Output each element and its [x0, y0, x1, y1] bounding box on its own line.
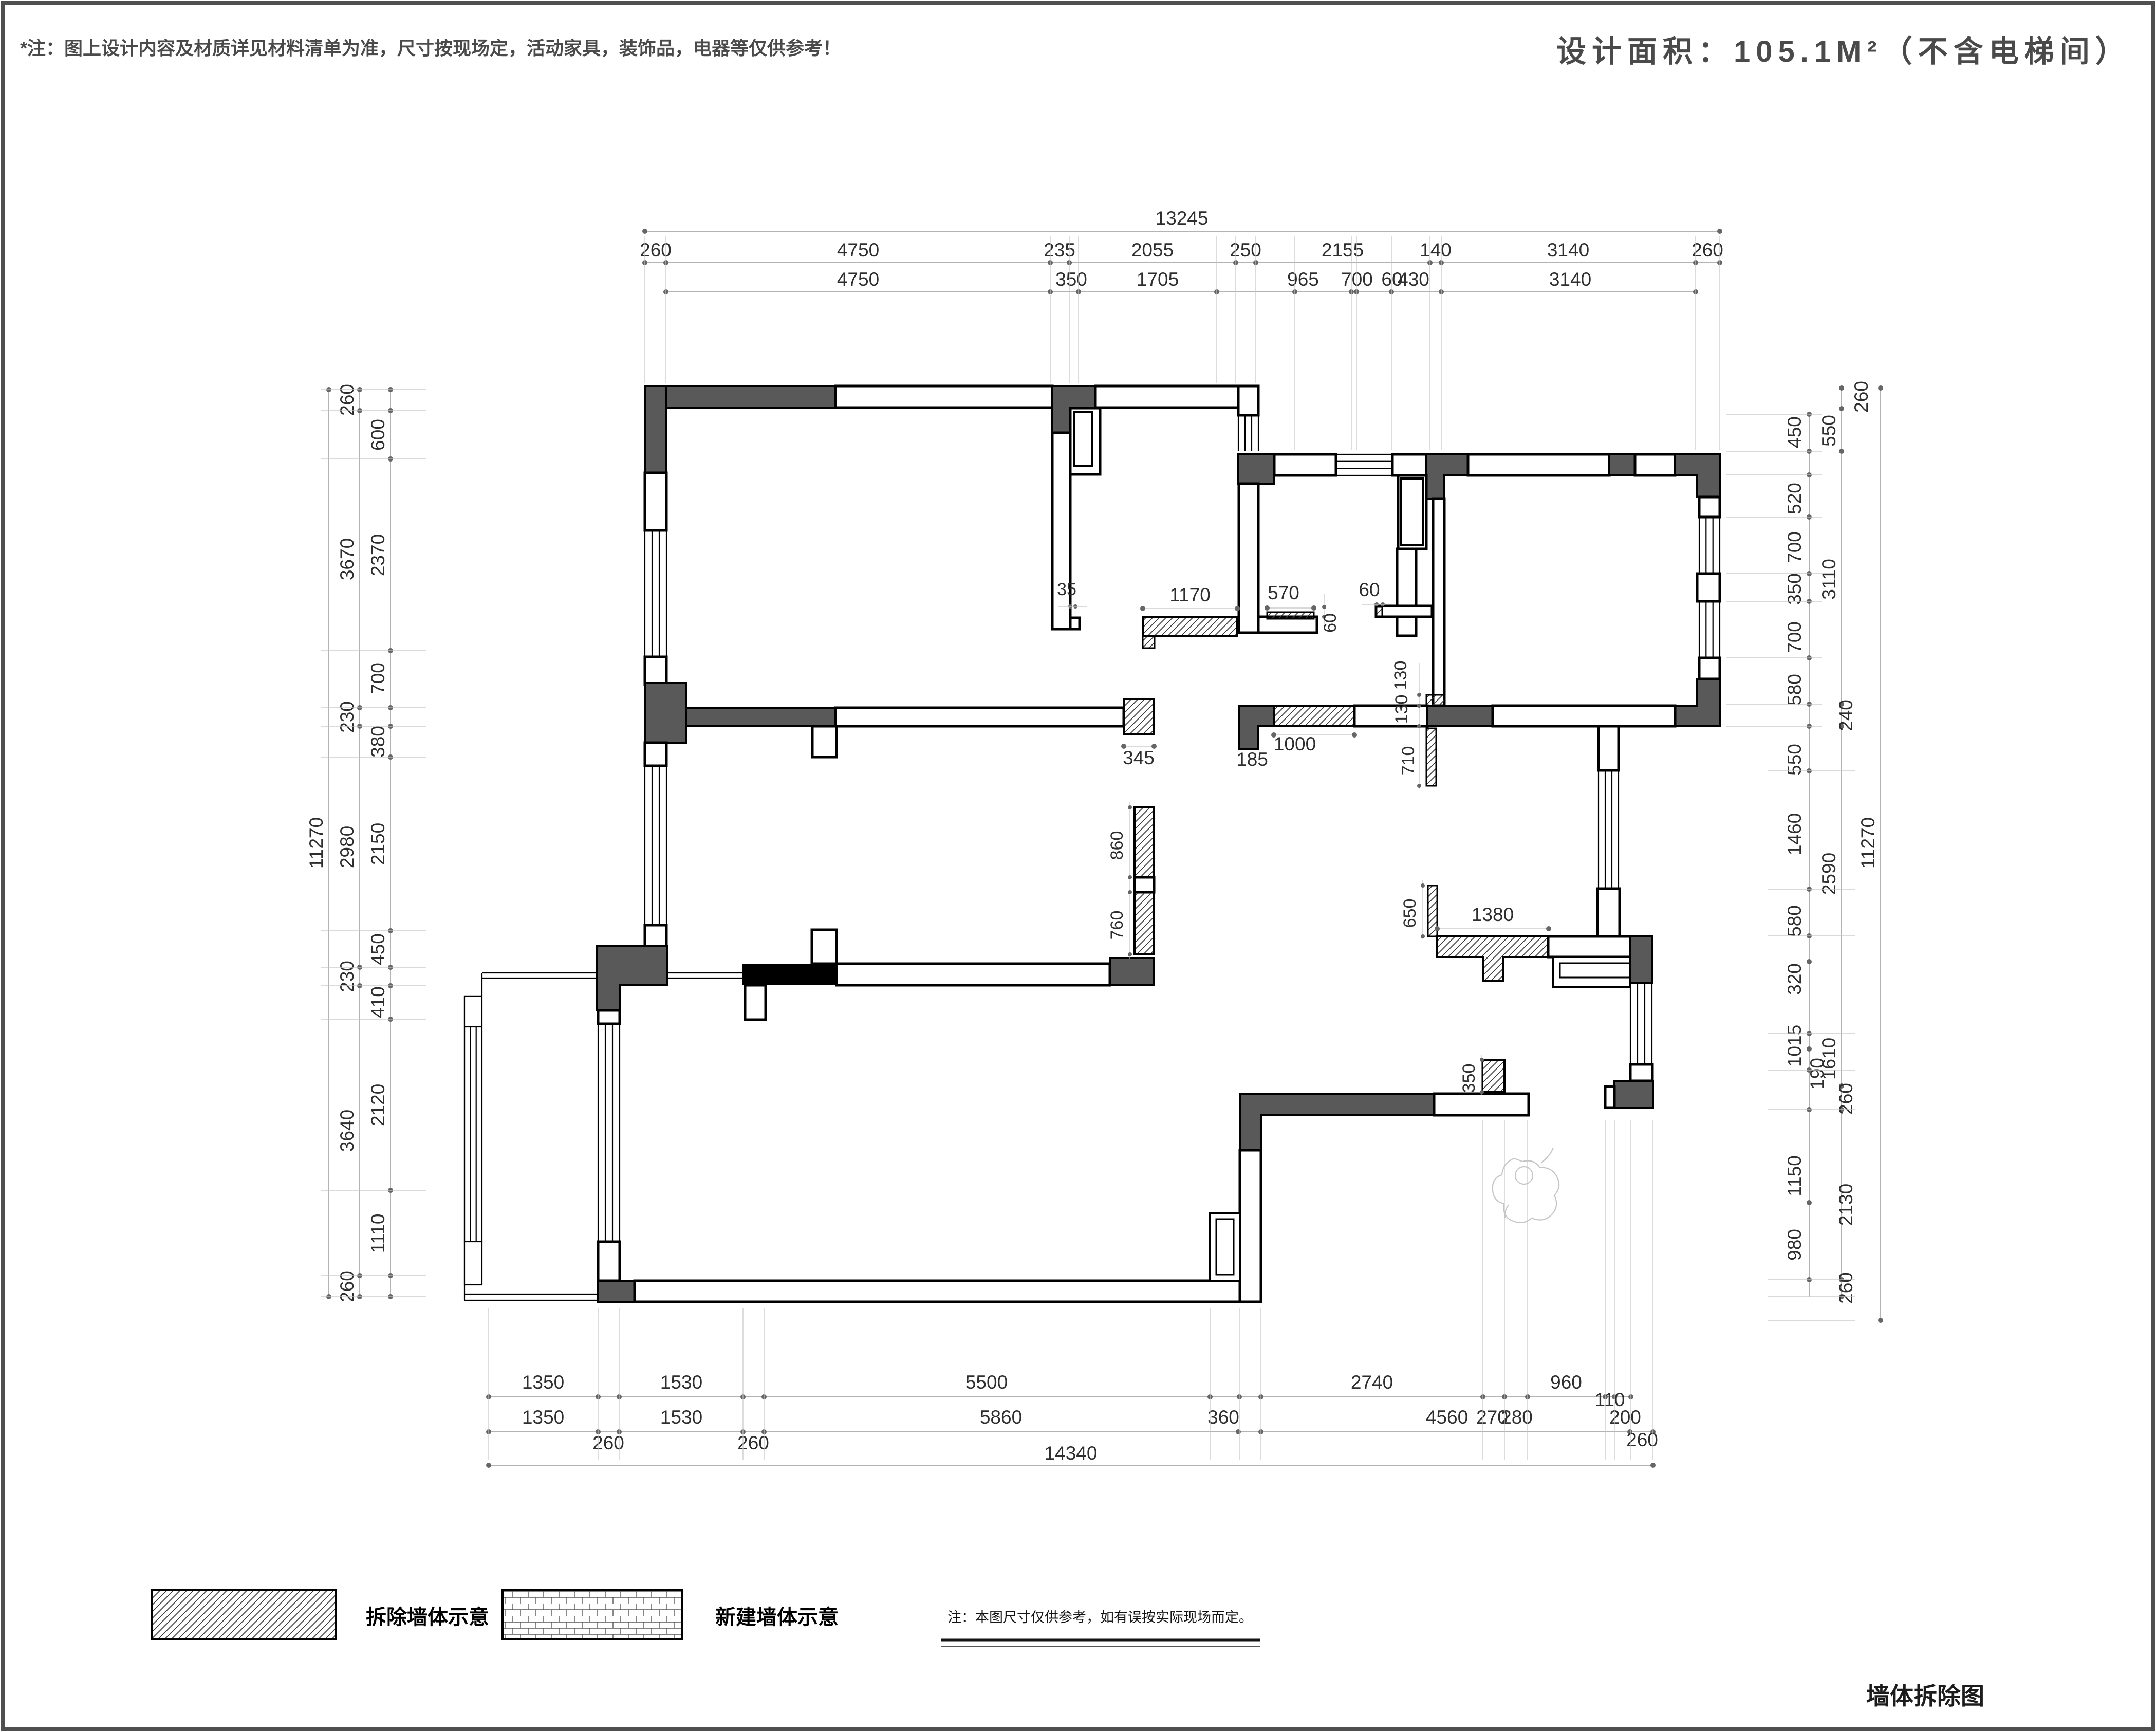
svg-text:185: 185 [1236, 749, 1268, 770]
svg-text:13245: 13245 [1156, 208, 1209, 229]
svg-text:130: 130 [1392, 695, 1411, 724]
svg-text:2130: 2130 [1835, 1184, 1856, 1226]
svg-text:3640: 3640 [337, 1110, 358, 1152]
svg-text:260: 260 [1851, 381, 1872, 413]
svg-text:2150: 2150 [367, 823, 388, 865]
svg-text:5860: 5860 [980, 1407, 1022, 1428]
svg-text:1350: 1350 [522, 1407, 564, 1428]
svg-text:1530: 1530 [660, 1372, 702, 1393]
svg-text:2740: 2740 [1351, 1372, 1393, 1393]
svg-text:700: 700 [1784, 531, 1805, 563]
svg-text:960: 960 [1550, 1372, 1582, 1393]
svg-text:2155: 2155 [1322, 239, 1364, 261]
svg-text:3140: 3140 [1549, 269, 1591, 290]
svg-text:260: 260 [1692, 239, 1723, 261]
svg-text:1110: 1110 [367, 1214, 388, 1254]
svg-text:3140: 3140 [1547, 239, 1589, 261]
svg-text:350: 350 [1055, 269, 1087, 290]
svg-text:新建墙体示意: 新建墙体示意 [715, 1606, 839, 1629]
svg-text:1350: 1350 [522, 1372, 564, 1393]
svg-text:130: 130 [1391, 661, 1410, 690]
svg-text:1530: 1530 [660, 1407, 702, 1428]
svg-text:*注：图上设计内容及材质详见材料清单为准，尺寸按现场定，活动: *注：图上设计内容及材质详见材料清单为准，尺寸按现场定，活动家具，装饰品，电器等… [20, 38, 841, 59]
svg-text:60: 60 [1359, 579, 1380, 600]
svg-text:14340: 14340 [1045, 1443, 1098, 1464]
svg-text:140: 140 [1420, 239, 1452, 261]
svg-text:230: 230 [337, 961, 358, 992]
svg-text:260: 260 [737, 1432, 769, 1453]
svg-text:11270: 11270 [306, 817, 327, 869]
svg-text:260: 260 [640, 239, 672, 261]
svg-text:5500: 5500 [965, 1372, 1008, 1393]
svg-text:2370: 2370 [367, 534, 388, 576]
svg-text:注：本图尺寸仅供参考，如有误按实际现场而定。: 注：本图尺寸仅供参考，如有误按实际现场而定。 [947, 1610, 1253, 1625]
svg-text:240: 240 [1835, 699, 1856, 731]
svg-text:4750: 4750 [837, 239, 879, 261]
svg-text:墙体拆除图: 墙体拆除图 [1866, 1683, 1984, 1709]
svg-text:965: 965 [1287, 269, 1319, 290]
svg-text:410: 410 [367, 986, 388, 1018]
svg-text:380: 380 [367, 726, 388, 758]
svg-text:设计面积：105.1M²（不含电梯间）: 设计面积：105.1M²（不含电梯间） [1556, 35, 2131, 68]
svg-text:2120: 2120 [367, 1084, 388, 1126]
svg-text:550: 550 [1818, 415, 1839, 447]
svg-text:3110: 3110 [1818, 559, 1839, 600]
svg-text:345: 345 [1123, 747, 1155, 768]
svg-text:260: 260 [1835, 1083, 1856, 1115]
svg-text:250: 250 [1230, 239, 1261, 261]
svg-text:260: 260 [592, 1432, 624, 1453]
svg-text:2055: 2055 [1131, 239, 1174, 261]
svg-text:260: 260 [337, 1270, 358, 1302]
svg-text:1380: 1380 [1472, 904, 1514, 925]
svg-text:260: 260 [1835, 1272, 1856, 1304]
svg-text:760: 760 [1107, 911, 1127, 940]
svg-text:60: 60 [1321, 613, 1340, 633]
svg-text:350: 350 [1784, 573, 1805, 605]
svg-text:450: 450 [1784, 416, 1805, 448]
svg-text:11270: 11270 [1857, 817, 1879, 869]
svg-text:1000: 1000 [1274, 733, 1316, 754]
svg-text:1610: 1610 [1818, 1038, 1839, 1080]
svg-text:650: 650 [1400, 899, 1420, 928]
svg-text:430: 430 [1398, 269, 1429, 290]
svg-text:350: 350 [1459, 1064, 1479, 1093]
svg-text:580: 580 [1784, 674, 1805, 706]
svg-text:35: 35 [1057, 580, 1076, 599]
svg-text:4750: 4750 [837, 269, 879, 290]
svg-text:260: 260 [337, 384, 358, 416]
svg-text:1170: 1170 [1169, 584, 1211, 605]
svg-text:360: 360 [1207, 1407, 1239, 1428]
svg-text:230: 230 [337, 701, 358, 733]
svg-text:600: 600 [367, 419, 388, 451]
svg-text:1460: 1460 [1784, 813, 1805, 855]
svg-text:700: 700 [1784, 621, 1805, 653]
svg-text:570: 570 [1268, 582, 1299, 603]
svg-text:1705: 1705 [1137, 269, 1179, 290]
svg-text:710: 710 [1399, 746, 1418, 776]
svg-text:110: 110 [1595, 1389, 1625, 1410]
svg-text:2590: 2590 [1818, 853, 1839, 895]
svg-text:320: 320 [1784, 963, 1805, 995]
svg-text:2980: 2980 [337, 826, 358, 868]
svg-text:700: 700 [367, 662, 388, 694]
svg-text:980: 980 [1784, 1229, 1805, 1261]
svg-text:3670: 3670 [337, 538, 358, 580]
svg-text:520: 520 [1784, 483, 1805, 514]
svg-text:1150: 1150 [1784, 1155, 1805, 1196]
svg-text:580: 580 [1784, 905, 1805, 937]
svg-text:860: 860 [1107, 831, 1127, 860]
svg-text:700: 700 [1341, 269, 1373, 290]
svg-text:235: 235 [1044, 239, 1075, 261]
svg-text:280: 280 [1501, 1407, 1533, 1428]
svg-text:1015: 1015 [1784, 1025, 1805, 1067]
svg-text:450: 450 [367, 933, 388, 965]
svg-text:4560: 4560 [1426, 1407, 1468, 1428]
svg-text:拆除墙体示意: 拆除墙体示意 [366, 1606, 489, 1629]
